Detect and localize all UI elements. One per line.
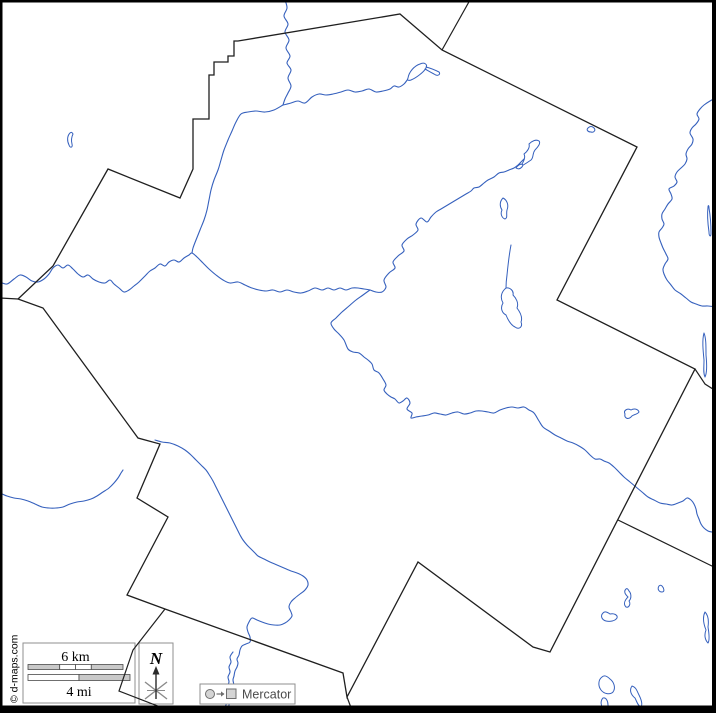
river-central-river: [331, 290, 716, 533]
frame-top: [0, 0, 716, 3]
lake-stream-head-fork: [521, 140, 540, 166]
lake-pond-top-right: [587, 127, 595, 133]
lake-squiggle-pond-b: [625, 589, 631, 608]
outline-map: 6 km 4 mi N Mercator © d-maps.com: [0, 0, 716, 713]
lake-thin-lake-east: [703, 333, 707, 377]
lake-narrow-lake-east-edge: [708, 206, 711, 236]
lake-curvy-lake-east-edge: [703, 612, 709, 643]
lake-curved-lake-south: [631, 686, 642, 707]
river-east-fork-creek: [283, 76, 411, 105]
river-north-creek: [283, 0, 291, 105]
lake-small-lake-center: [500, 198, 508, 219]
globe-circle-icon: [206, 690, 215, 699]
scale-bar-segment: [28, 665, 60, 670]
lakes-layer: [68, 63, 711, 710]
river-west-fork-creek: [192, 105, 283, 253]
lake-long-lake: [501, 288, 521, 328]
river-northeast-branch: [370, 159, 524, 292]
lake-tailed-pond: [602, 612, 618, 621]
neighbor-boundary-3: [618, 520, 716, 568]
lake-crescent-pond-west: [68, 132, 73, 147]
boundaries-layer: [0, 0, 716, 713]
lake-squiggle-pond-a: [625, 409, 639, 418]
attribution-text: © d-maps.com: [9, 634, 21, 703]
north-arrow-box: N: [139, 643, 173, 704]
lake-long-lake-stem: [506, 245, 511, 288]
scale-bar-segment: [28, 675, 79, 681]
lake-creek-head-hook: [425, 67, 440, 75]
river-southwest-stream: [0, 470, 123, 508]
scale-bar-segment: [91, 665, 123, 670]
scale-bar-segment: [76, 665, 92, 670]
projection-label: Mercator: [242, 688, 291, 702]
frame-left: [0, 0, 3, 713]
frame-bottom: [0, 706, 716, 713]
scale-box: 6 km 4 mi: [23, 643, 135, 703]
county-boundary: [18, 14, 695, 697]
projected-square-icon: [227, 689, 237, 699]
lake-round-lake-south: [599, 676, 615, 694]
neighbor-boundary-6: [0, 298, 18, 299]
scale-km-label: 6 km: [61, 650, 90, 665]
lake-creek-head-loop: [408, 63, 427, 80]
scale-bar-mi: [28, 675, 130, 681]
scale-bar-km: [28, 665, 123, 670]
river-south-river: [155, 440, 308, 709]
frame-right: [712, 0, 716, 713]
north-label: N: [149, 649, 163, 668]
map-frame: [0, 0, 716, 713]
rivers-layer: [0, 0, 716, 709]
scale-bar-segment: [60, 665, 76, 670]
neighbor-boundary-1: [442, 0, 470, 50]
river-east-river: [659, 98, 716, 307]
lake-stream-head-sliver: [516, 164, 523, 169]
river-west-river: [0, 253, 370, 293]
lake-tiny-pond: [658, 585, 664, 592]
map-page: 6 km 4 mi N Mercator © d-maps.com: [0, 0, 716, 713]
scale-mi-label: 4 mi: [66, 685, 91, 700]
projection-box: Mercator: [200, 684, 295, 704]
